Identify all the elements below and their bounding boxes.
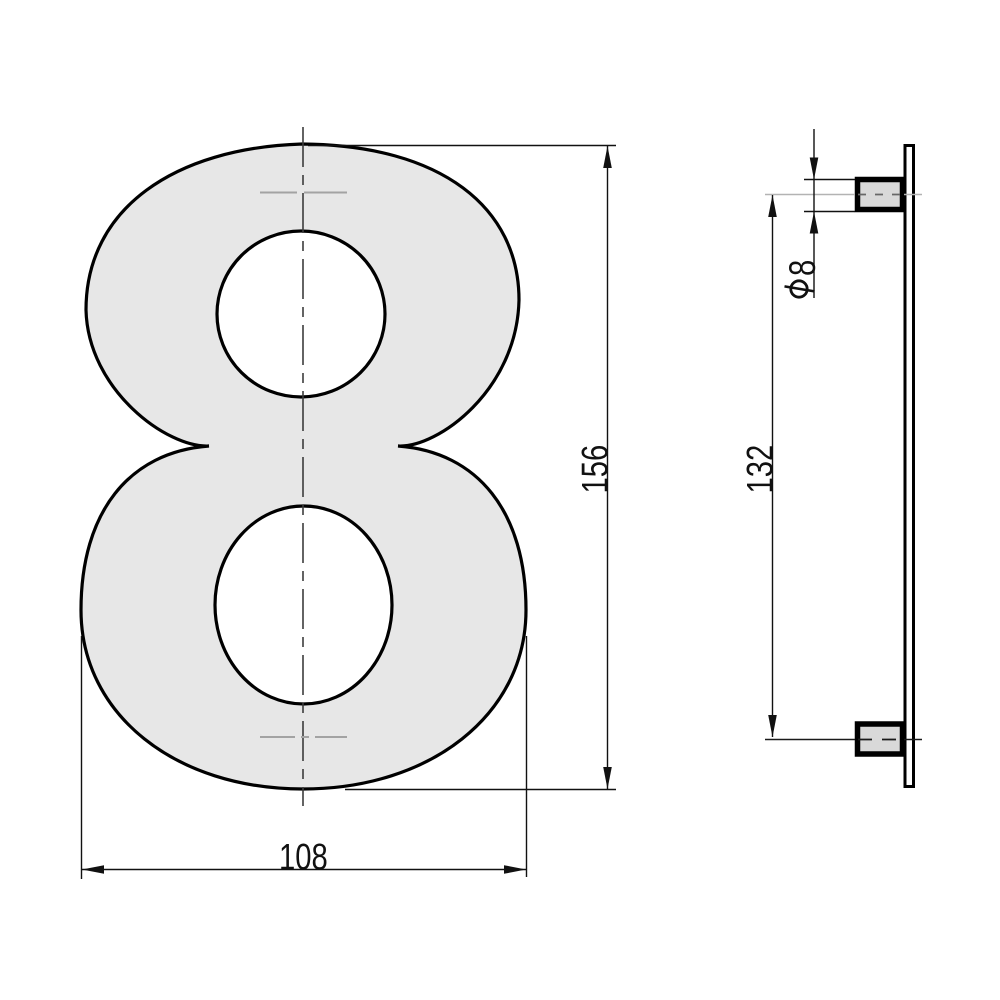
svg-text:156: 156	[575, 445, 616, 494]
svg-text:8: 8	[783, 260, 824, 276]
svg-text:132: 132	[740, 445, 781, 494]
svg-text:108: 108	[279, 837, 328, 878]
